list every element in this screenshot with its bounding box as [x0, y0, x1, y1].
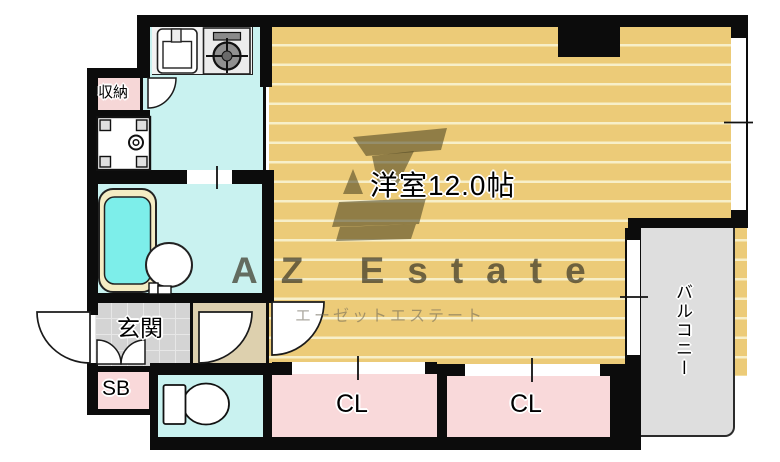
room-label-closet2: CL	[510, 392, 542, 417]
floorplan-canvas: AZ Estate エーゼットエステート 洋室12.0帖 収納 玄関 SB CL…	[0, 0, 780, 462]
brand-watermark-kana: エーゼットエステート	[295, 309, 485, 325]
room-label-balcony: バルコニー	[674, 283, 691, 378]
logo-a-triangle	[343, 169, 363, 194]
room-label-shoebox: SB	[102, 378, 130, 399]
room-label-storage: 収納	[98, 85, 128, 100]
room-label-entrance: 玄関	[117, 317, 163, 340]
room-label-main: 洋室12.0帖	[370, 172, 516, 200]
logo-bar-mid	[332, 198, 426, 227]
logo-bar-bottom	[336, 224, 416, 241]
brand-watermark-text: AZ Estate	[231, 252, 609, 289]
logo-bar-top	[353, 128, 447, 156]
room-label-closet1: CL	[336, 392, 368, 417]
